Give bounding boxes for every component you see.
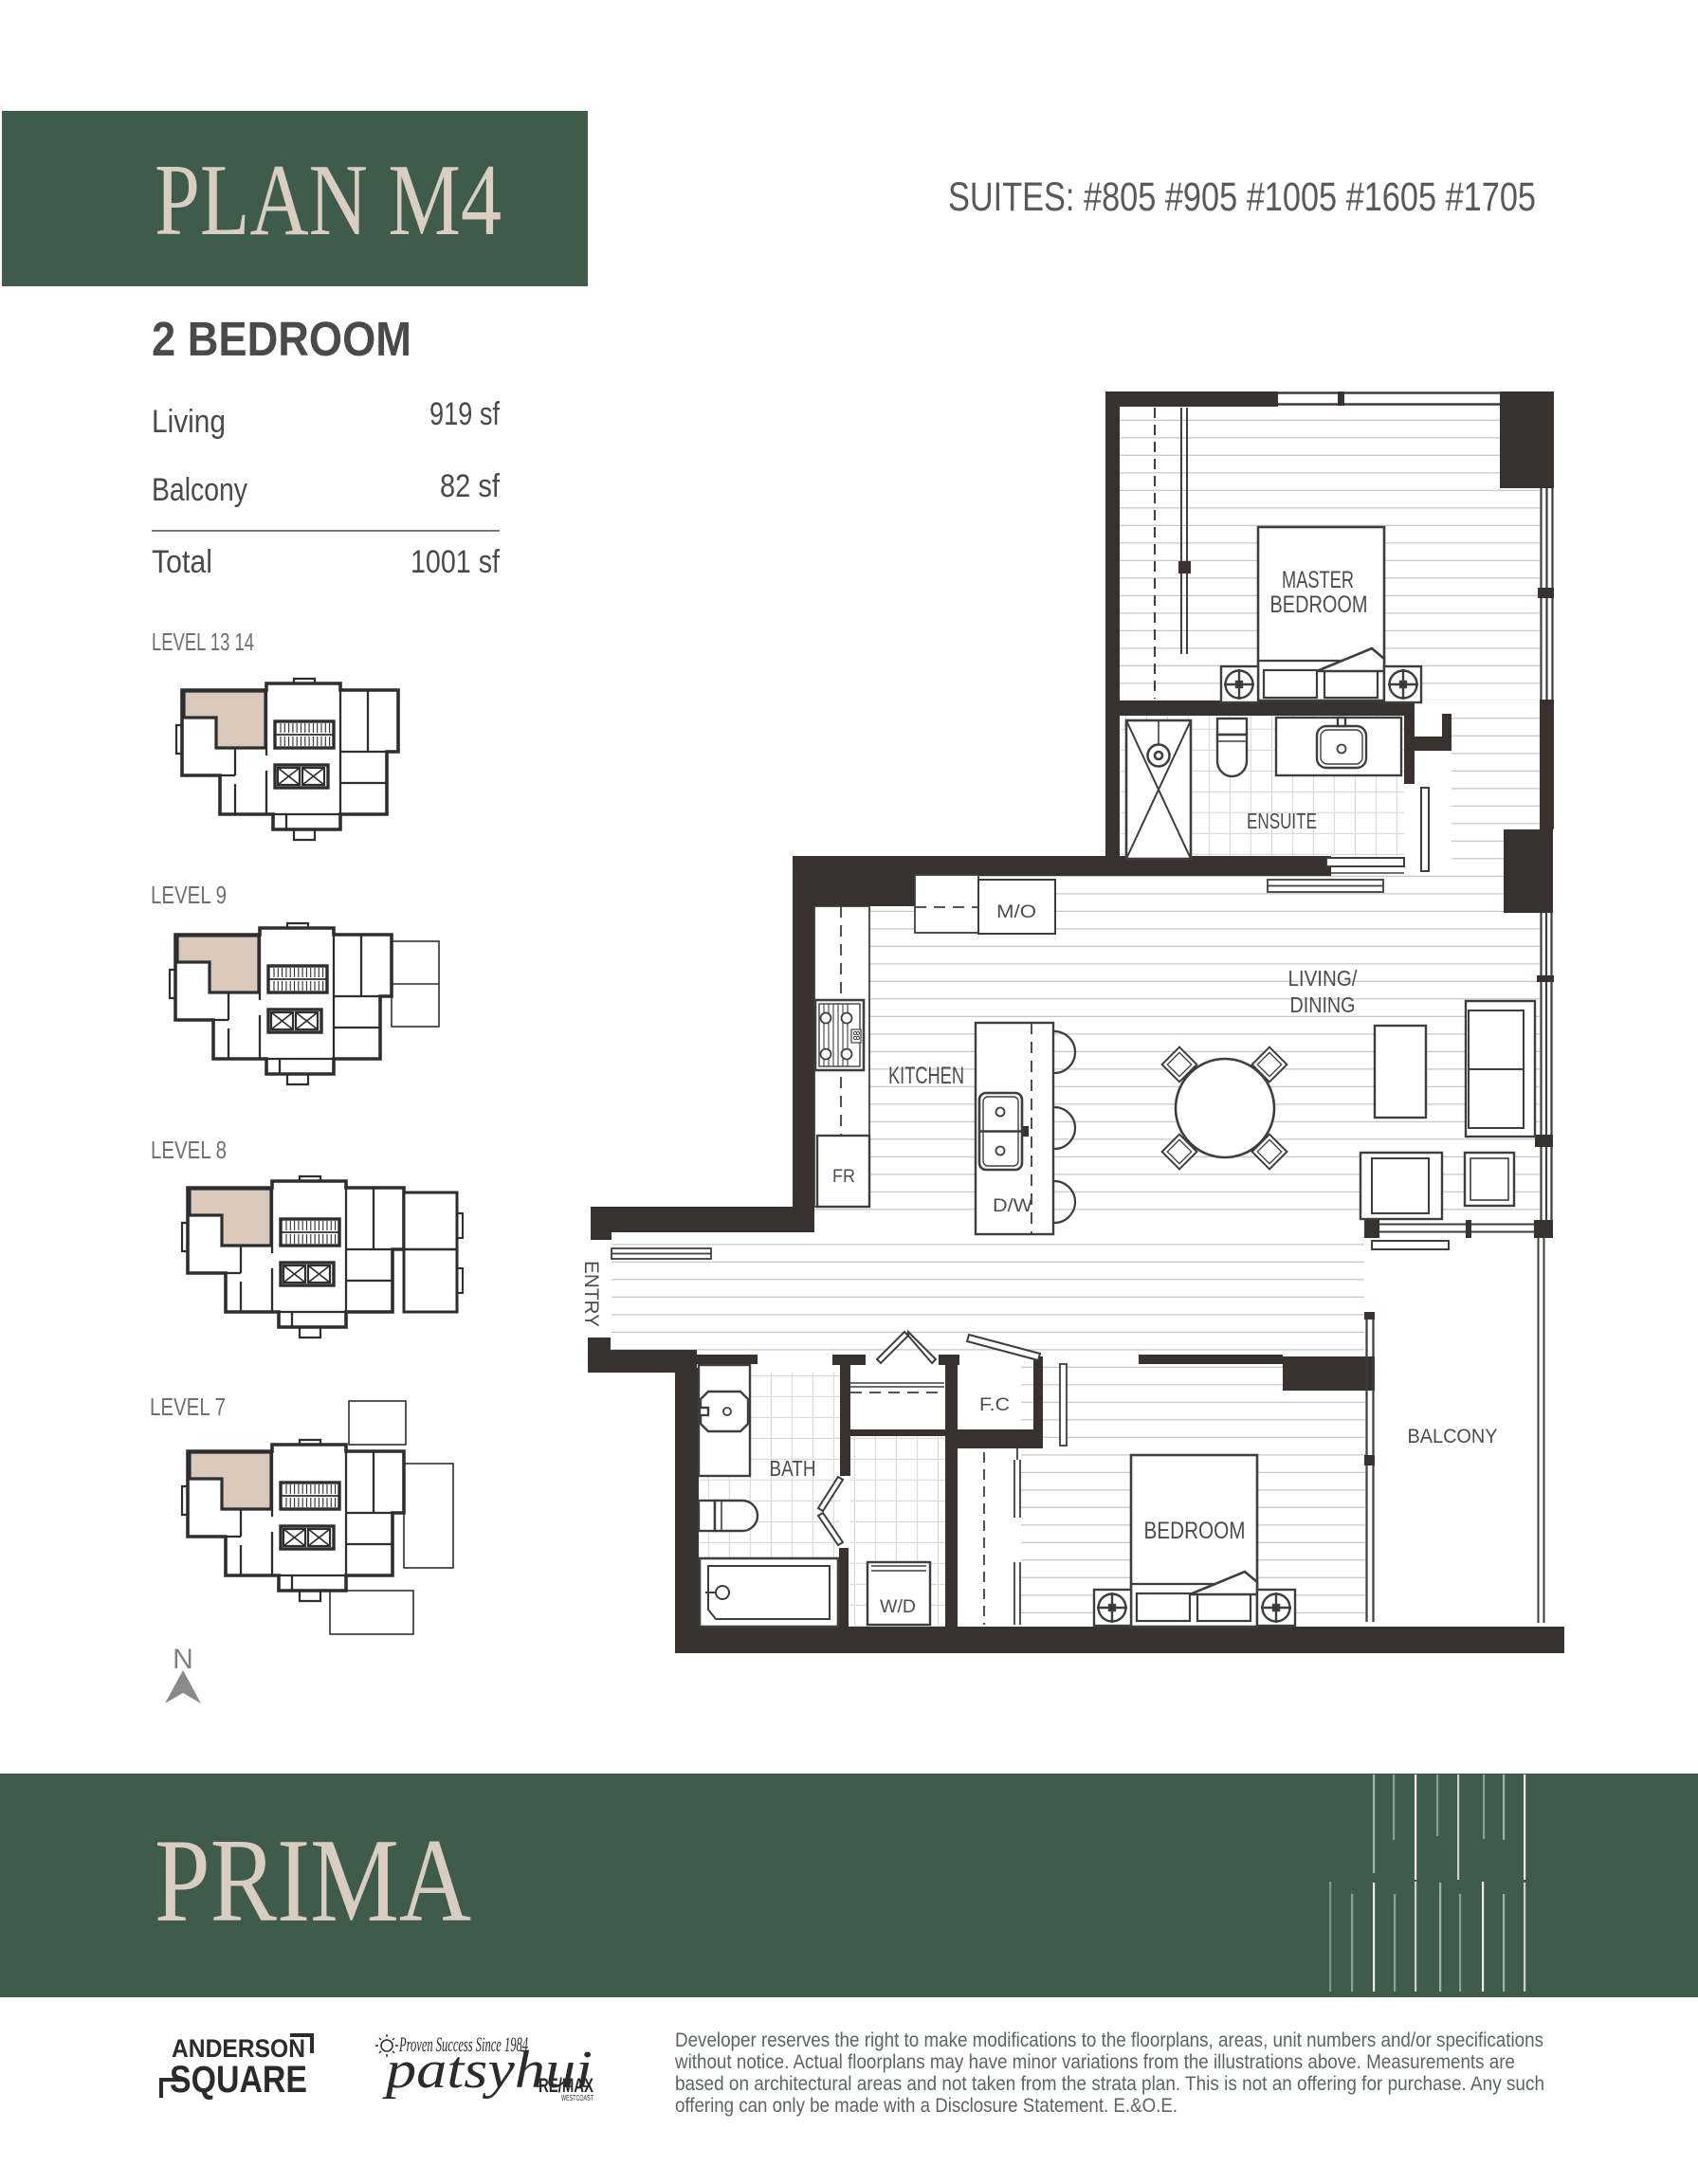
svg-text:BEDROOM: BEDROOM — [1270, 591, 1368, 618]
svg-text:LEVEL 13 14: LEVEL 13 14 — [152, 628, 254, 656]
svg-text:LEVEL 7: LEVEL 7 — [150, 1392, 226, 1421]
svg-text:82 sf: 82 sf — [440, 468, 500, 504]
svg-text:M/O: M/O — [996, 902, 1036, 922]
svg-text:LIVING/: LIVING/ — [1288, 966, 1359, 991]
svg-text:LEVEL 8: LEVEL 8 — [151, 1136, 227, 1164]
svg-text:2 BEDROOM: 2 BEDROOM — [152, 312, 411, 366]
svg-text:D/W: D/W — [993, 1196, 1032, 1216]
svg-text:SQUARE: SQUARE — [170, 2059, 307, 2101]
svg-text:1001 sf: 1001 sf — [411, 544, 500, 580]
svg-text:LEVEL 9: LEVEL 9 — [151, 881, 227, 909]
svg-text:W/D: W/D — [880, 1597, 916, 1617]
svg-text:WESTCOAST: WESTCOAST — [561, 2094, 593, 2102]
svg-text:FR: FR — [832, 1167, 855, 1187]
svg-text:PRIMA: PRIMA — [155, 1815, 471, 1947]
svg-text:offering can only be made with: offering can only be made with a Disclos… — [675, 2095, 1178, 2117]
svg-text:919 sf: 919 sf — [429, 396, 500, 432]
svg-text:Balcony: Balcony — [152, 472, 247, 508]
svg-text:MASTER: MASTER — [1282, 567, 1354, 593]
svg-text:ENSUITE: ENSUITE — [1247, 809, 1317, 833]
svg-text:KITCHEN: KITCHEN — [888, 1063, 964, 1089]
svg-text:Living: Living — [152, 404, 226, 440]
svg-text:BEDROOM: BEDROOM — [1144, 1518, 1246, 1544]
svg-text:ENTRY: ENTRY — [580, 1261, 602, 1327]
svg-text:based on architectural areas a: based on architectural areas and not tak… — [675, 2073, 1544, 2095]
svg-text:F.C: F.C — [979, 1395, 1010, 1415]
svg-text:PLAN M4: PLAN M4 — [155, 144, 502, 257]
svg-text:BALCONY: BALCONY — [1408, 1426, 1498, 1447]
svg-text:without notice. Actual floorpl: without notice. Actual floorplans may ha… — [674, 2051, 1515, 2073]
svg-text:BATH: BATH — [770, 1456, 816, 1481]
svg-text:Developer reserves the right t: Developer reserves the right to make mod… — [675, 2029, 1543, 2051]
svg-text:SUITES: #805 #905 #1005 #1605: SUITES: #805 #905 #1005 #1605 #1705 — [948, 174, 1536, 220]
svg-text:DINING: DINING — [1290, 992, 1356, 1017]
svg-text:Total: Total — [152, 544, 212, 580]
